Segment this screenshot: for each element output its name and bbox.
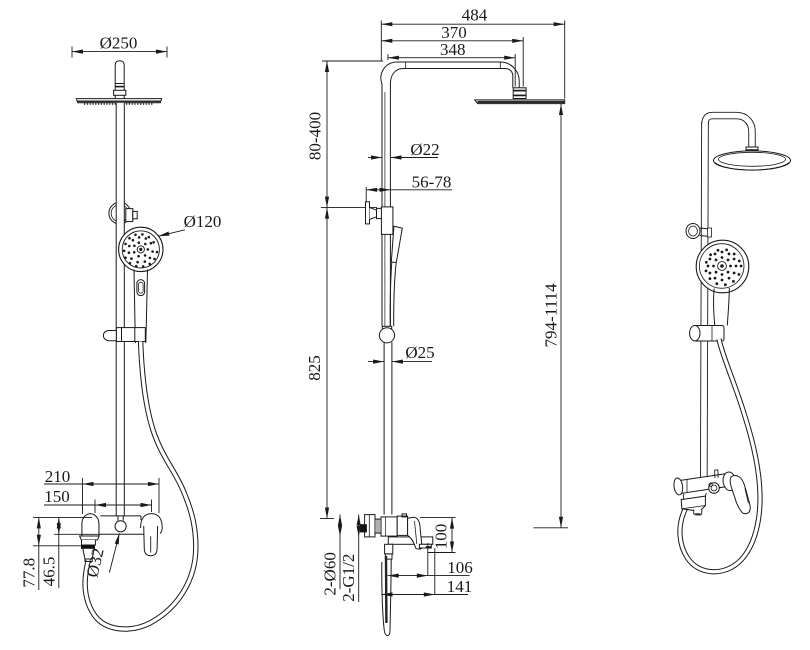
svg-text:825: 825 — [305, 355, 324, 381]
svg-text:Ø22: Ø22 — [410, 140, 439, 159]
svg-text:150: 150 — [44, 487, 70, 506]
svg-text:348: 348 — [440, 40, 466, 59]
svg-text:46.5: 46.5 — [40, 557, 59, 587]
svg-text:794-1114: 794-1114 — [542, 283, 561, 347]
svg-text:Ø120: Ø120 — [184, 212, 222, 231]
svg-text:100: 100 — [432, 524, 451, 550]
svg-text:141: 141 — [447, 577, 473, 596]
svg-text:370: 370 — [441, 23, 467, 42]
svg-text:106: 106 — [447, 558, 473, 577]
svg-text:2-G1/2: 2-G1/2 — [339, 554, 358, 602]
svg-text:77.8: 77.8 — [20, 558, 39, 588]
svg-text:56-78: 56-78 — [412, 172, 452, 191]
svg-text:210: 210 — [45, 467, 71, 486]
svg-text:Ø25: Ø25 — [405, 343, 434, 362]
svg-text:2-Ø60: 2-Ø60 — [321, 552, 340, 595]
svg-text:80-400: 80-400 — [306, 112, 325, 160]
svg-text:Ø250: Ø250 — [100, 34, 138, 53]
